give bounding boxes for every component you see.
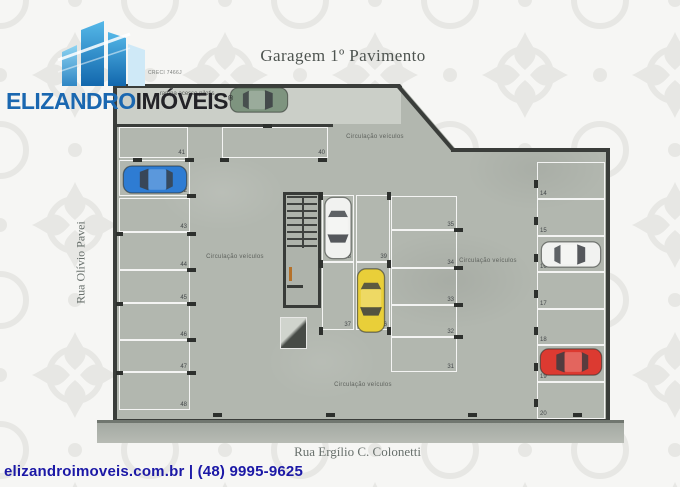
parking-spot-17: 17 [537, 272, 605, 309]
pillar [133, 158, 142, 162]
parking-spot-46: 46 [119, 303, 190, 340]
pillar [319, 327, 323, 335]
parking-spot-18: 18 [537, 309, 605, 345]
stairwell [283, 192, 321, 308]
parking-spot-35: 35 [391, 196, 457, 230]
logo-buildings-icon [50, 18, 170, 90]
pillar [534, 327, 538, 335]
pillar [213, 413, 222, 417]
pillar [187, 302, 196, 306]
spot-number: 44 [180, 262, 187, 268]
circulation-label-left: Circulação veículos [185, 254, 285, 260]
pillar [387, 192, 391, 200]
wall-top-right [451, 148, 610, 152]
spot-number: 34 [447, 260, 454, 266]
spot-number: 43 [180, 224, 187, 230]
parking-spot-48: 48 [119, 372, 190, 410]
logo-text-imoveis: IMÓVEIS [136, 88, 228, 114]
pillar [468, 413, 477, 417]
car-blue [122, 164, 188, 195]
spot-number: 48 [180, 402, 187, 408]
pillar [454, 303, 463, 307]
logo-wordmark: ELIZANDROIMÓVEIS® [6, 88, 233, 115]
stair-rail [302, 196, 304, 248]
pillar [454, 266, 463, 270]
spot-number: 18 [540, 337, 547, 343]
pillar [319, 260, 323, 268]
pillar [534, 217, 538, 225]
parking-spot-34: 34 [391, 230, 457, 268]
sidewalk [97, 420, 624, 443]
car-yellow [356, 267, 387, 333]
pillar [534, 363, 538, 371]
contact-info: elizandroimoveis.com.br | (48) 9995-9625 [4, 463, 303, 480]
car-green [229, 86, 289, 114]
spot-number: 31 [447, 364, 454, 370]
spot-number: 40 [318, 150, 325, 156]
parking-spot-45: 45 [119, 270, 190, 303]
spot-number: 14 [540, 191, 547, 197]
pillar [387, 327, 391, 335]
parking-spot-37: 37 [322, 262, 354, 330]
car-white [323, 196, 353, 260]
pillar [116, 371, 123, 375]
parking-spot-32: 32 [391, 305, 457, 337]
circulation-label-top: Circulação veículos [325, 134, 425, 140]
registered-mark: ® [228, 95, 233, 102]
pillar [187, 194, 196, 198]
pillar [534, 399, 538, 407]
spot-number: 33 [447, 297, 454, 303]
spot-number: 32 [447, 329, 454, 335]
spot-number: 47 [180, 364, 187, 370]
pillar [454, 228, 463, 232]
car-red [539, 347, 603, 377]
pillar [116, 302, 123, 306]
pillar [534, 180, 538, 188]
pillar [263, 124, 272, 128]
parking-spot-14: 14 [537, 162, 605, 199]
pillar [318, 158, 327, 162]
parking-spot-20: 20 [537, 382, 605, 419]
parking-spot-39: 39 [356, 195, 390, 262]
pillar [116, 232, 123, 236]
spot-number: 45 [180, 295, 187, 301]
logo: ELIZANDROIMÓVEIS® [4, 18, 234, 118]
wall-right [606, 148, 610, 423]
pillar [326, 413, 335, 417]
hatched-ramp-box [280, 317, 307, 349]
parking-spot-43: 43 [119, 198, 190, 232]
spot-number: 46 [180, 332, 187, 338]
pillar [187, 232, 196, 236]
parking-spot-33: 33 [391, 268, 457, 305]
parking-spot-47: 47 [119, 340, 190, 372]
creci-text: CRECI 7466J [148, 70, 182, 76]
parking-spot-40: 40 [222, 127, 328, 158]
street-label-bottom: Rua Ergílio C. Colonetti [230, 444, 485, 460]
car-white-2 [540, 240, 602, 269]
page-title: Garagem 1º Pavimento [218, 46, 468, 66]
flyer-canvas: ELIZANDROIMÓVEIS® Garagem 1º Pavimento C… [0, 0, 680, 487]
spot-number: 41 [178, 150, 185, 156]
parking-spot-44: 44 [119, 232, 190, 270]
pillar [534, 290, 538, 298]
spot-number: 37 [344, 322, 351, 328]
spot-number: 39 [380, 254, 387, 260]
pillar [187, 268, 196, 272]
spot-number: 17 [540, 301, 547, 307]
pillar [220, 158, 229, 162]
pillar [185, 158, 194, 162]
pillar [454, 335, 463, 339]
pillar [187, 371, 196, 375]
pillar [573, 413, 582, 417]
parking-spot-15: 15 [537, 199, 605, 236]
parking-spot-41: 41 [119, 127, 188, 158]
spot-number: 20 [540, 411, 547, 417]
spot-number: 15 [540, 228, 547, 234]
stair-door-mark [289, 267, 292, 281]
circulation-label-bottom: Circulação veículos [308, 382, 418, 388]
pillar [187, 338, 196, 342]
street-label-left: Rua Olívio Pavei [74, 213, 89, 313]
parking-spot-31: 31 [391, 337, 457, 372]
logo-text-elizandro: ELIZANDRO [6, 88, 136, 114]
pillar [534, 254, 538, 262]
spot-number: 35 [447, 222, 454, 228]
stair-inner-wall [287, 285, 303, 288]
pillar [387, 260, 391, 268]
